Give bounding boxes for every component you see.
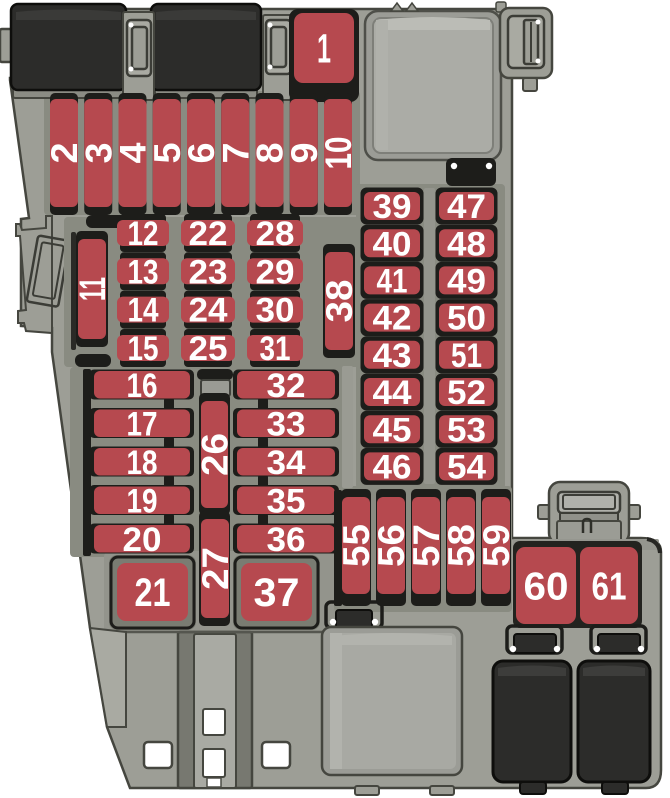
svg-text:30: 30 (256, 292, 295, 330)
svg-text:52: 52 (447, 374, 486, 412)
svg-text:59: 59 (476, 524, 517, 567)
svg-text:39: 39 (373, 188, 412, 226)
svg-text:12: 12 (128, 215, 159, 253)
svg-text:48: 48 (447, 225, 486, 263)
svg-text:21: 21 (135, 571, 171, 615)
svg-text:22: 22 (189, 215, 228, 253)
svg-text:10: 10 (318, 137, 359, 170)
svg-text:29: 29 (256, 253, 295, 291)
svg-text:53: 53 (447, 411, 486, 449)
svg-text:31: 31 (260, 330, 291, 368)
svg-text:32: 32 (267, 367, 306, 405)
svg-text:13: 13 (128, 253, 159, 291)
svg-text:34: 34 (267, 444, 306, 482)
svg-text:25: 25 (189, 330, 228, 368)
svg-text:49: 49 (447, 263, 486, 301)
svg-text:18: 18 (127, 444, 158, 482)
svg-text:54: 54 (447, 449, 486, 487)
svg-text:60: 60 (524, 565, 569, 608)
svg-text:20: 20 (123, 521, 162, 559)
svg-text:50: 50 (447, 300, 486, 338)
svg-text:26: 26 (195, 433, 236, 476)
svg-text:45: 45 (373, 411, 412, 449)
svg-text:37: 37 (254, 571, 300, 615)
svg-text:27: 27 (195, 547, 236, 590)
svg-text:40: 40 (373, 225, 412, 263)
svg-text:23: 23 (189, 253, 228, 291)
svg-text:33: 33 (267, 405, 306, 443)
svg-text:44: 44 (373, 374, 412, 412)
svg-text:61: 61 (592, 565, 627, 608)
svg-text:19: 19 (127, 482, 158, 520)
svg-text:11: 11 (72, 277, 113, 301)
svg-text:14: 14 (128, 292, 159, 330)
svg-text:51: 51 (451, 337, 482, 375)
svg-text:16: 16 (127, 367, 158, 405)
svg-text:46: 46 (373, 449, 412, 487)
svg-text:42: 42 (373, 300, 412, 338)
svg-text:1: 1 (317, 26, 331, 72)
svg-text:24: 24 (189, 292, 228, 330)
svg-text:41: 41 (377, 263, 408, 301)
svg-text:47: 47 (447, 188, 486, 226)
svg-text:35: 35 (267, 482, 306, 520)
svg-text:15: 15 (128, 330, 159, 368)
svg-text:38: 38 (319, 280, 360, 323)
svg-text:43: 43 (373, 337, 412, 375)
svg-text:17: 17 (127, 405, 158, 443)
svg-text:36: 36 (267, 521, 306, 559)
svg-text:28: 28 (256, 215, 295, 253)
